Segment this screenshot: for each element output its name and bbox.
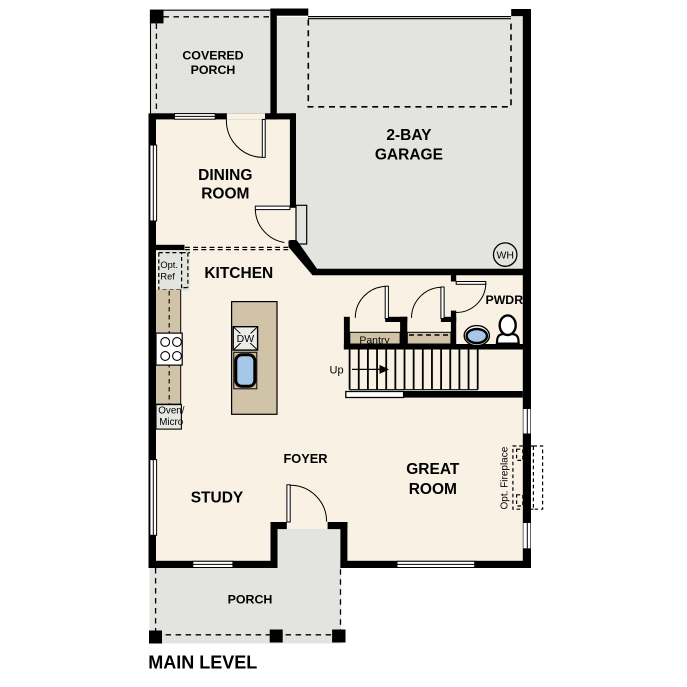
svg-text:PORCH: PORCH (191, 63, 236, 77)
svg-text:GREAT: GREAT (406, 461, 460, 478)
svg-text:KITCHEN: KITCHEN (204, 265, 273, 282)
svg-text:WH: WH (496, 249, 514, 261)
svg-text:PORCH: PORCH (228, 593, 273, 607)
svg-text:STUDY: STUDY (191, 490, 244, 507)
svg-text:Pantry: Pantry (359, 335, 390, 347)
svg-text:Oven/: Oven/ (158, 406, 184, 417)
svg-text:GARAGE: GARAGE (375, 147, 443, 164)
svg-text:2-BAY: 2-BAY (386, 127, 432, 144)
svg-text:Opt.: Opt. (160, 260, 178, 270)
svg-text:Opt. Fireplace: Opt. Fireplace (500, 446, 511, 509)
svg-text:FOYER: FOYER (283, 451, 327, 466)
svg-text:COVERED: COVERED (182, 49, 243, 63)
svg-text:DINING: DINING (198, 167, 252, 184)
svg-text:DW: DW (237, 333, 255, 345)
svg-text:PWDR: PWDR (486, 293, 524, 307)
svg-text:MAIN LEVEL: MAIN LEVEL (148, 652, 257, 672)
svg-text:ROOM: ROOM (409, 481, 457, 498)
svg-text:Micro: Micro (159, 417, 183, 428)
svg-text:Ref: Ref (160, 272, 175, 282)
svg-text:ROOM: ROOM (201, 185, 249, 202)
svg-text:Up: Up (330, 364, 344, 376)
